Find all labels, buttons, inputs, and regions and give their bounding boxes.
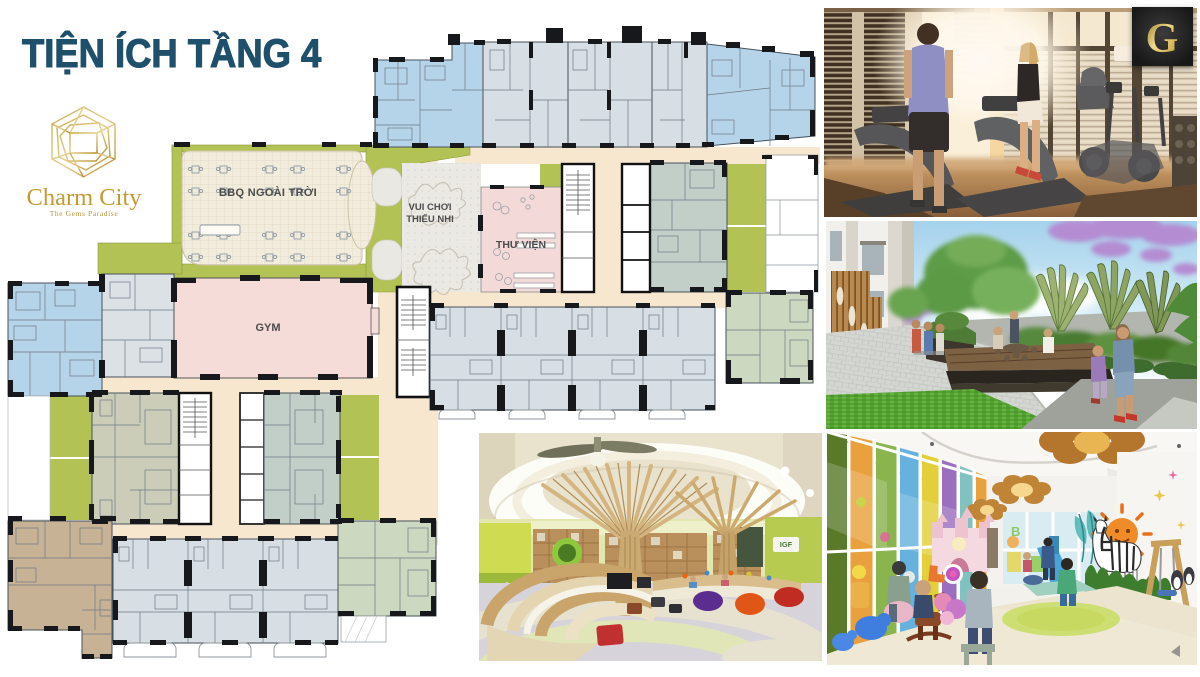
svg-text:THƯ VIỆN: THƯ VIỆN: [496, 238, 546, 251]
svg-text:The Gems Paradise: The Gems Paradise: [50, 209, 119, 218]
svg-text:GYM: GYM: [255, 322, 280, 334]
svg-text:Charm City: Charm City: [26, 184, 142, 211]
svg-text:IGF: IGF: [780, 540, 793, 549]
svg-text:G: G: [1146, 16, 1179, 62]
svg-text:THIẾU NHI: THIẾU NHI: [406, 214, 454, 225]
svg-text:BBQ NGOÀI TRỜI: BBQ NGOÀI TRỜI: [219, 186, 317, 199]
svg-text:B: B: [1011, 524, 1020, 539]
svg-text:VUI CHƠI: VUI CHƠI: [409, 202, 452, 213]
